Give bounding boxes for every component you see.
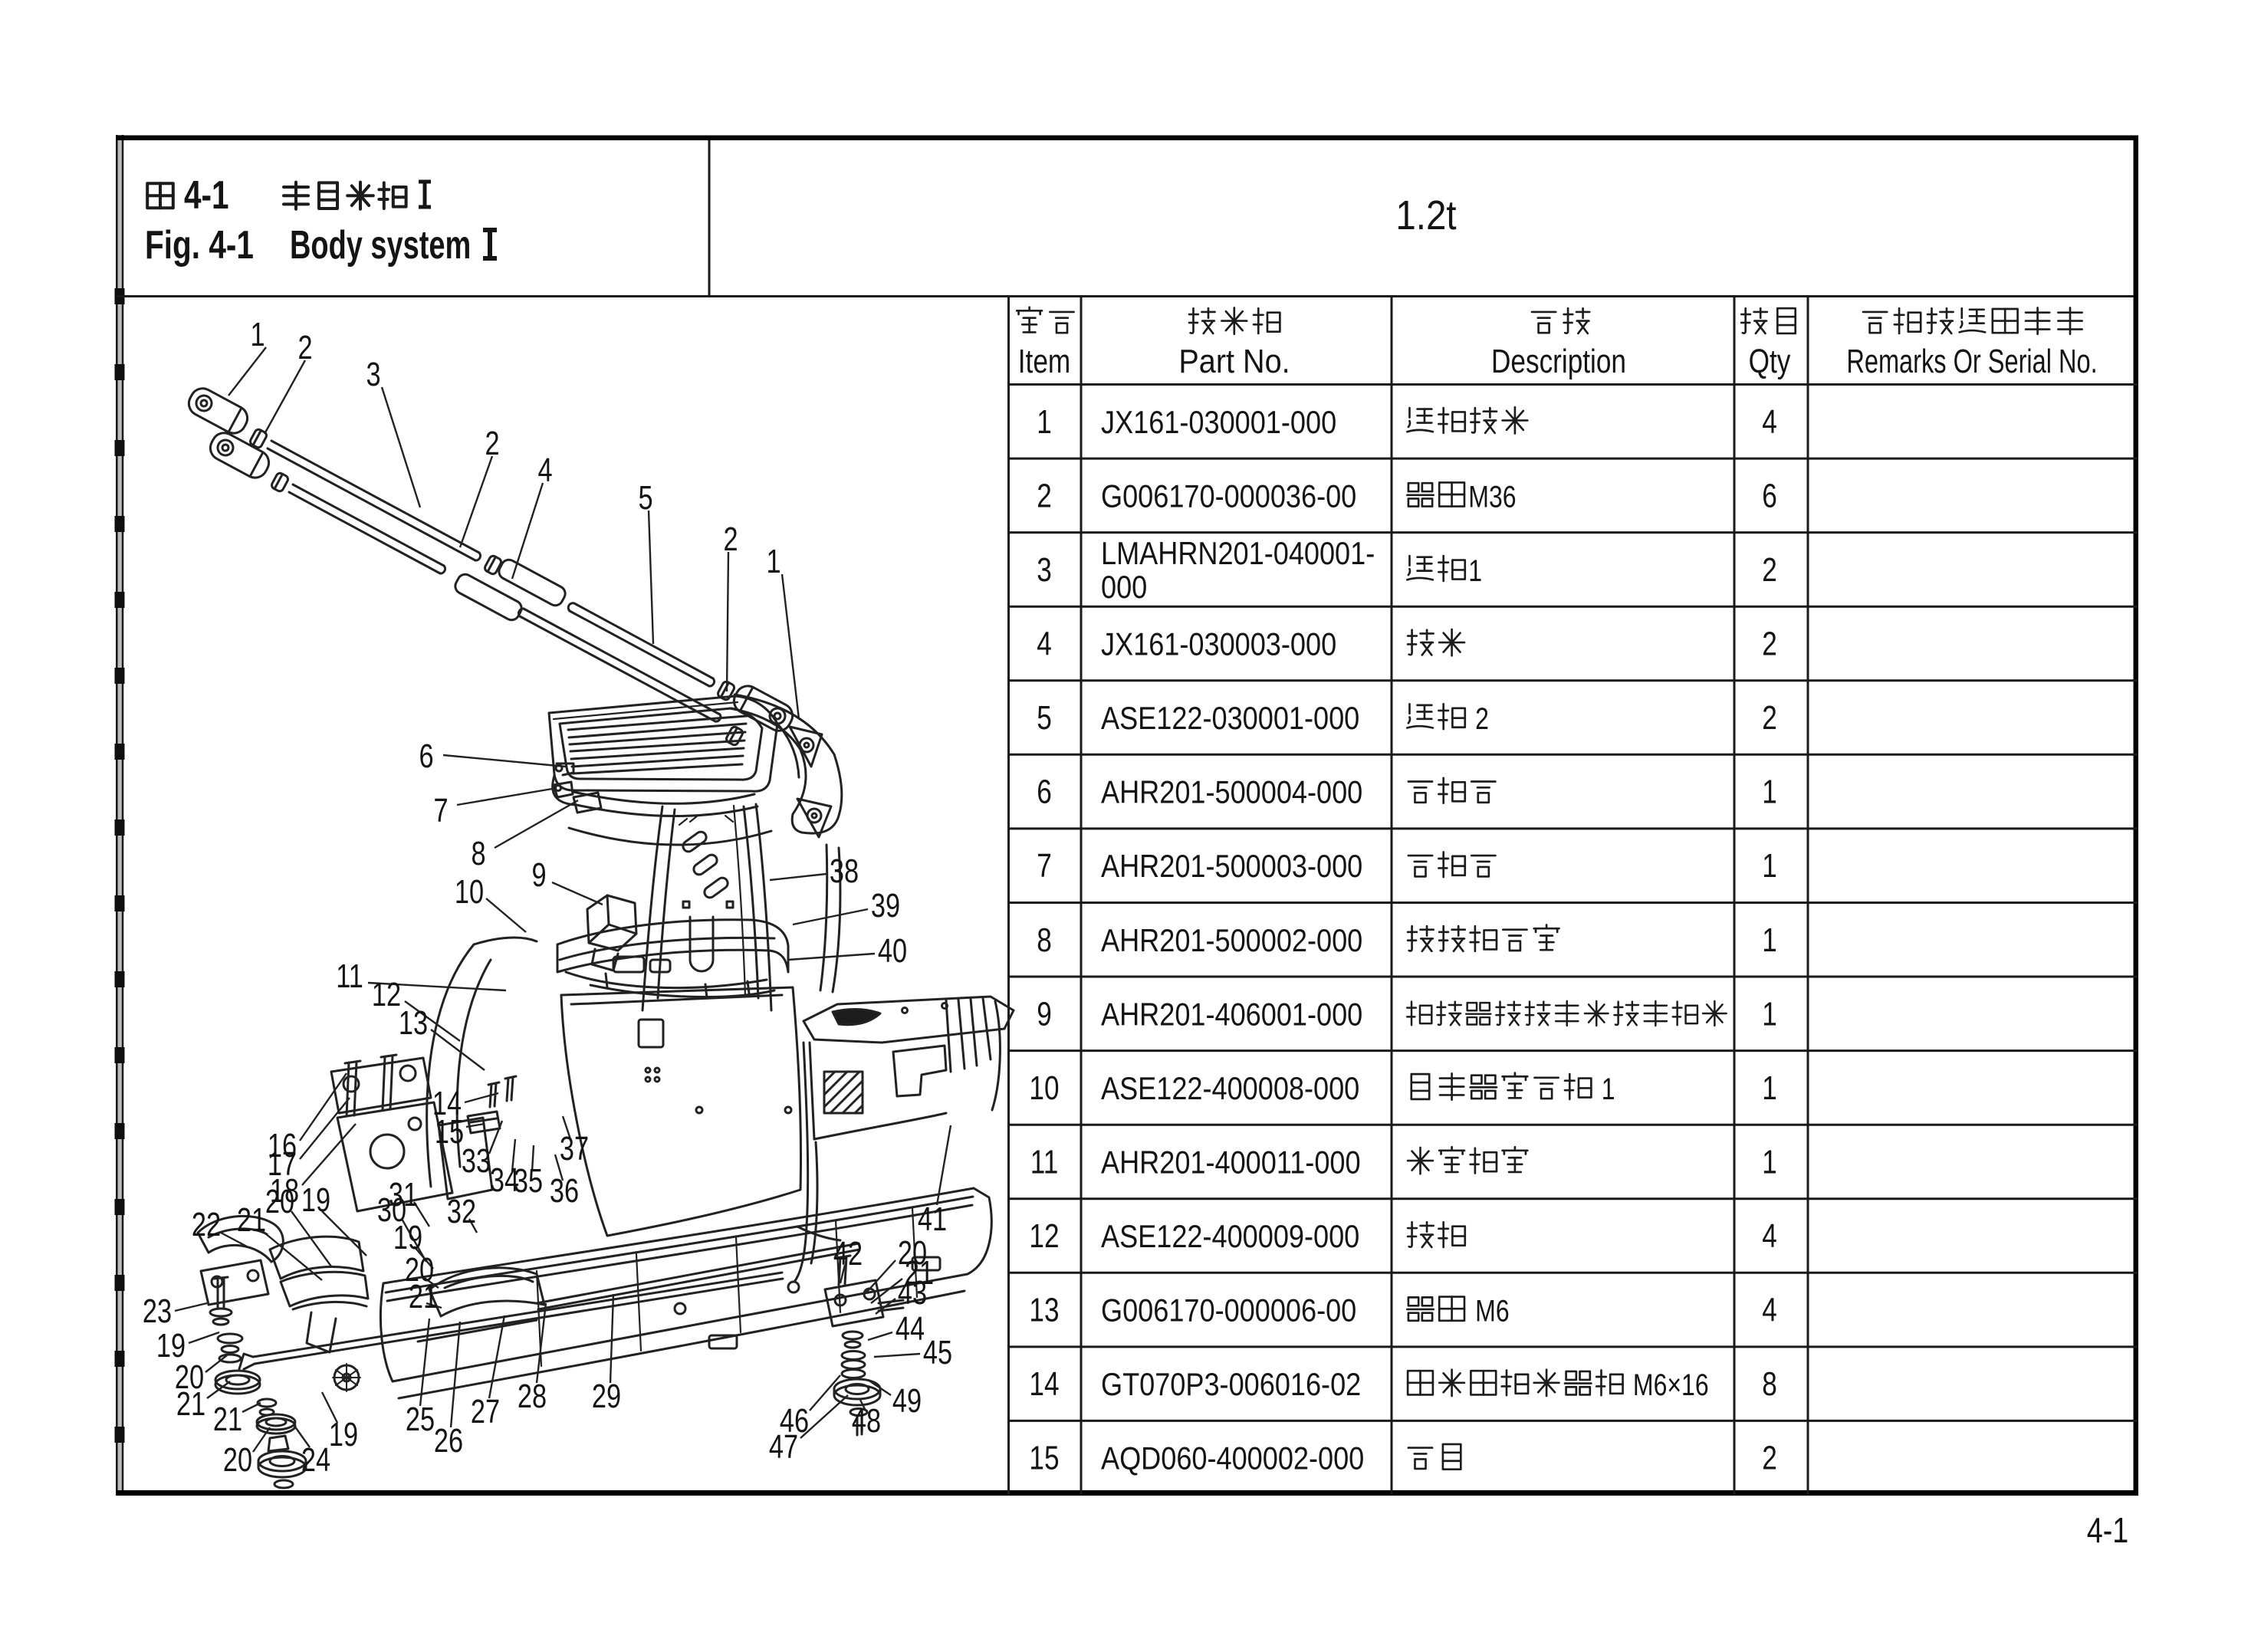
svg-text:32: 32 <box>447 1193 476 1230</box>
svg-text:1: 1 <box>1762 848 1777 885</box>
svg-text:38: 38 <box>830 852 859 890</box>
svg-text:1: 1 <box>1762 996 1777 1033</box>
svg-text:31: 31 <box>389 1176 418 1214</box>
svg-text:8: 8 <box>1762 1365 1777 1403</box>
svg-text:6: 6 <box>1037 773 1052 811</box>
svg-text:2: 2 <box>1762 626 1777 663</box>
svg-text:42: 42 <box>833 1235 863 1273</box>
svg-text:21: 21 <box>213 1401 242 1438</box>
svg-text:21: 21 <box>176 1385 205 1423</box>
svg-text:7: 7 <box>1037 848 1052 885</box>
svg-text:1.2t: 1.2t <box>1395 192 1456 238</box>
svg-text:4: 4 <box>1037 626 1052 663</box>
svg-text:47: 47 <box>769 1428 798 1466</box>
svg-text:AHR201-500002-000: AHR201-500002-000 <box>1101 923 1362 958</box>
svg-text:1: 1 <box>1762 1069 1777 1107</box>
svg-text:4-1: 4-1 <box>2087 1510 2129 1549</box>
svg-text:AHR201-400011-000: AHR201-400011-000 <box>1101 1145 1361 1181</box>
svg-text:AHR201-500003-000: AHR201-500003-000 <box>1101 849 1362 885</box>
svg-text:Item: Item <box>1018 343 1070 380</box>
svg-text:M6: M6 <box>1475 1293 1509 1328</box>
svg-text:11: 11 <box>336 957 363 995</box>
svg-text:40: 40 <box>878 932 907 970</box>
svg-text:JX161-030001-000: JX161-030001-000 <box>1101 405 1336 440</box>
svg-text:43: 43 <box>898 1274 927 1312</box>
svg-text:1: 1 <box>1762 773 1777 811</box>
svg-text:3: 3 <box>1037 551 1052 589</box>
svg-text:6: 6 <box>1762 478 1777 515</box>
svg-text:23: 23 <box>143 1292 172 1330</box>
svg-text:48: 48 <box>852 1402 881 1440</box>
svg-text:1: 1 <box>1037 403 1052 441</box>
svg-text:1: 1 <box>1468 553 1482 587</box>
svg-text:49: 49 <box>892 1382 922 1420</box>
svg-text:9: 9 <box>531 856 546 894</box>
svg-text:4: 4 <box>1762 1217 1777 1255</box>
svg-text:45: 45 <box>923 1334 952 1371</box>
svg-text:36: 36 <box>550 1172 579 1210</box>
svg-text:2: 2 <box>1762 551 1777 589</box>
svg-text:2: 2 <box>723 521 738 558</box>
svg-text:Remarks Or Serial No.: Remarks Or Serial No. <box>1846 343 2097 380</box>
svg-text:Part No.: Part No. <box>1178 342 1290 379</box>
svg-text:2: 2 <box>1037 478 1052 515</box>
svg-text:GT070P3-006016-02: GT070P3-006016-02 <box>1101 1368 1361 1403</box>
svg-text:10: 10 <box>1029 1069 1059 1107</box>
svg-text:1: 1 <box>250 316 265 353</box>
svg-text:25: 25 <box>406 1401 435 1438</box>
svg-text:13: 13 <box>1029 1292 1059 1329</box>
svg-text:29: 29 <box>592 1378 621 1415</box>
svg-text:1: 1 <box>766 543 781 580</box>
svg-text:ASE122-400008-000: ASE122-400008-000 <box>1101 1071 1359 1106</box>
svg-text:28: 28 <box>518 1378 547 1415</box>
svg-text:AQD060-400002-000: AQD060-400002-000 <box>1101 1441 1364 1476</box>
svg-text:4: 4 <box>537 452 552 489</box>
svg-text:1: 1 <box>1762 921 1777 959</box>
svg-text:ASE122-400009-000: ASE122-400009-000 <box>1101 1220 1359 1255</box>
svg-text:44: 44 <box>896 1310 925 1348</box>
svg-text:8: 8 <box>1037 921 1052 959</box>
svg-text:M6×16: M6×16 <box>1633 1368 1709 1402</box>
svg-text:G006170-000036-00: G006170-000036-00 <box>1101 479 1356 514</box>
svg-text:Body system: Body system <box>290 222 471 267</box>
svg-text:ASE122-030001-000: ASE122-030001-000 <box>1101 701 1359 737</box>
svg-text:26: 26 <box>434 1422 463 1460</box>
svg-text:9: 9 <box>1037 996 1052 1033</box>
svg-text:10: 10 <box>455 873 484 911</box>
svg-text:33: 33 <box>462 1142 491 1180</box>
svg-text:AHR201-500004-000: AHR201-500004-000 <box>1101 775 1362 810</box>
svg-text:6: 6 <box>419 737 433 775</box>
svg-text:20: 20 <box>223 1441 252 1479</box>
svg-text:JX161-030003-000: JX161-030003-000 <box>1101 627 1336 662</box>
svg-text:4: 4 <box>1762 1292 1777 1329</box>
svg-text:41: 41 <box>918 1200 947 1238</box>
svg-text:LMAHRN201-040001-: LMAHRN201-040001- <box>1101 536 1375 571</box>
svg-text:1: 1 <box>1762 1144 1777 1181</box>
svg-text:22: 22 <box>192 1206 221 1243</box>
svg-text:11: 11 <box>1030 1144 1059 1181</box>
svg-text:21: 21 <box>409 1278 438 1315</box>
svg-text:1: 1 <box>1602 1071 1615 1105</box>
svg-text:2: 2 <box>1475 701 1489 736</box>
svg-text:15: 15 <box>1029 1440 1059 1477</box>
svg-text:15: 15 <box>435 1113 464 1151</box>
svg-text:2: 2 <box>297 329 312 366</box>
svg-text:4: 4 <box>1762 403 1777 441</box>
svg-text:M36: M36 <box>1468 479 1516 514</box>
svg-text:AHR201-406001-000: AHR201-406001-000 <box>1101 997 1362 1033</box>
svg-text:5: 5 <box>1037 699 1052 737</box>
svg-text:Fig. 4-1: Fig. 4-1 <box>145 222 254 267</box>
svg-text:12: 12 <box>1029 1217 1059 1255</box>
svg-text:Qty: Qty <box>1749 343 1791 380</box>
svg-text:24: 24 <box>301 1441 330 1479</box>
svg-text:000: 000 <box>1101 570 1147 605</box>
svg-text:8: 8 <box>471 835 485 872</box>
svg-text:13: 13 <box>399 1004 428 1042</box>
svg-text:12: 12 <box>372 976 401 1013</box>
svg-text:5: 5 <box>638 479 652 517</box>
svg-text:27: 27 <box>471 1393 500 1430</box>
svg-text:3: 3 <box>366 356 380 393</box>
svg-text:Description: Description <box>1491 343 1626 380</box>
svg-text:21: 21 <box>237 1201 266 1239</box>
svg-text:39: 39 <box>871 887 900 925</box>
svg-text:19: 19 <box>329 1416 358 1453</box>
svg-text:14: 14 <box>1029 1365 1059 1403</box>
svg-text:20: 20 <box>265 1183 294 1220</box>
svg-text:37: 37 <box>560 1130 589 1168</box>
svg-text:4-1: 4-1 <box>184 172 229 217</box>
svg-text:2: 2 <box>1762 1440 1777 1477</box>
svg-text:2: 2 <box>1762 699 1777 737</box>
svg-text:19: 19 <box>301 1181 330 1219</box>
svg-text:2: 2 <box>485 425 499 462</box>
svg-text:35: 35 <box>514 1162 543 1200</box>
svg-text:G006170-000006-00: G006170-000006-00 <box>1101 1293 1356 1328</box>
svg-text:7: 7 <box>433 792 448 829</box>
